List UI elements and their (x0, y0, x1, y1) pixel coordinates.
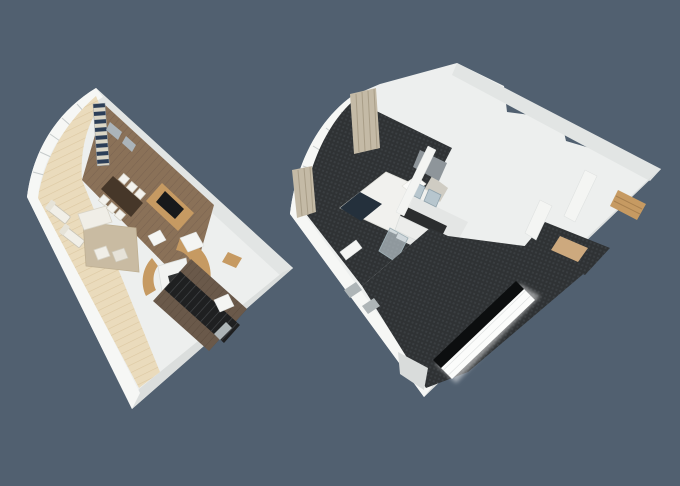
area-rug (83, 222, 139, 272)
curtain-top-corner (350, 88, 380, 154)
bedroom-level-floorplan (290, 63, 661, 397)
render-canvas (0, 0, 680, 486)
floorplans-illustration (0, 0, 680, 486)
living-level-floorplan (27, 88, 293, 409)
